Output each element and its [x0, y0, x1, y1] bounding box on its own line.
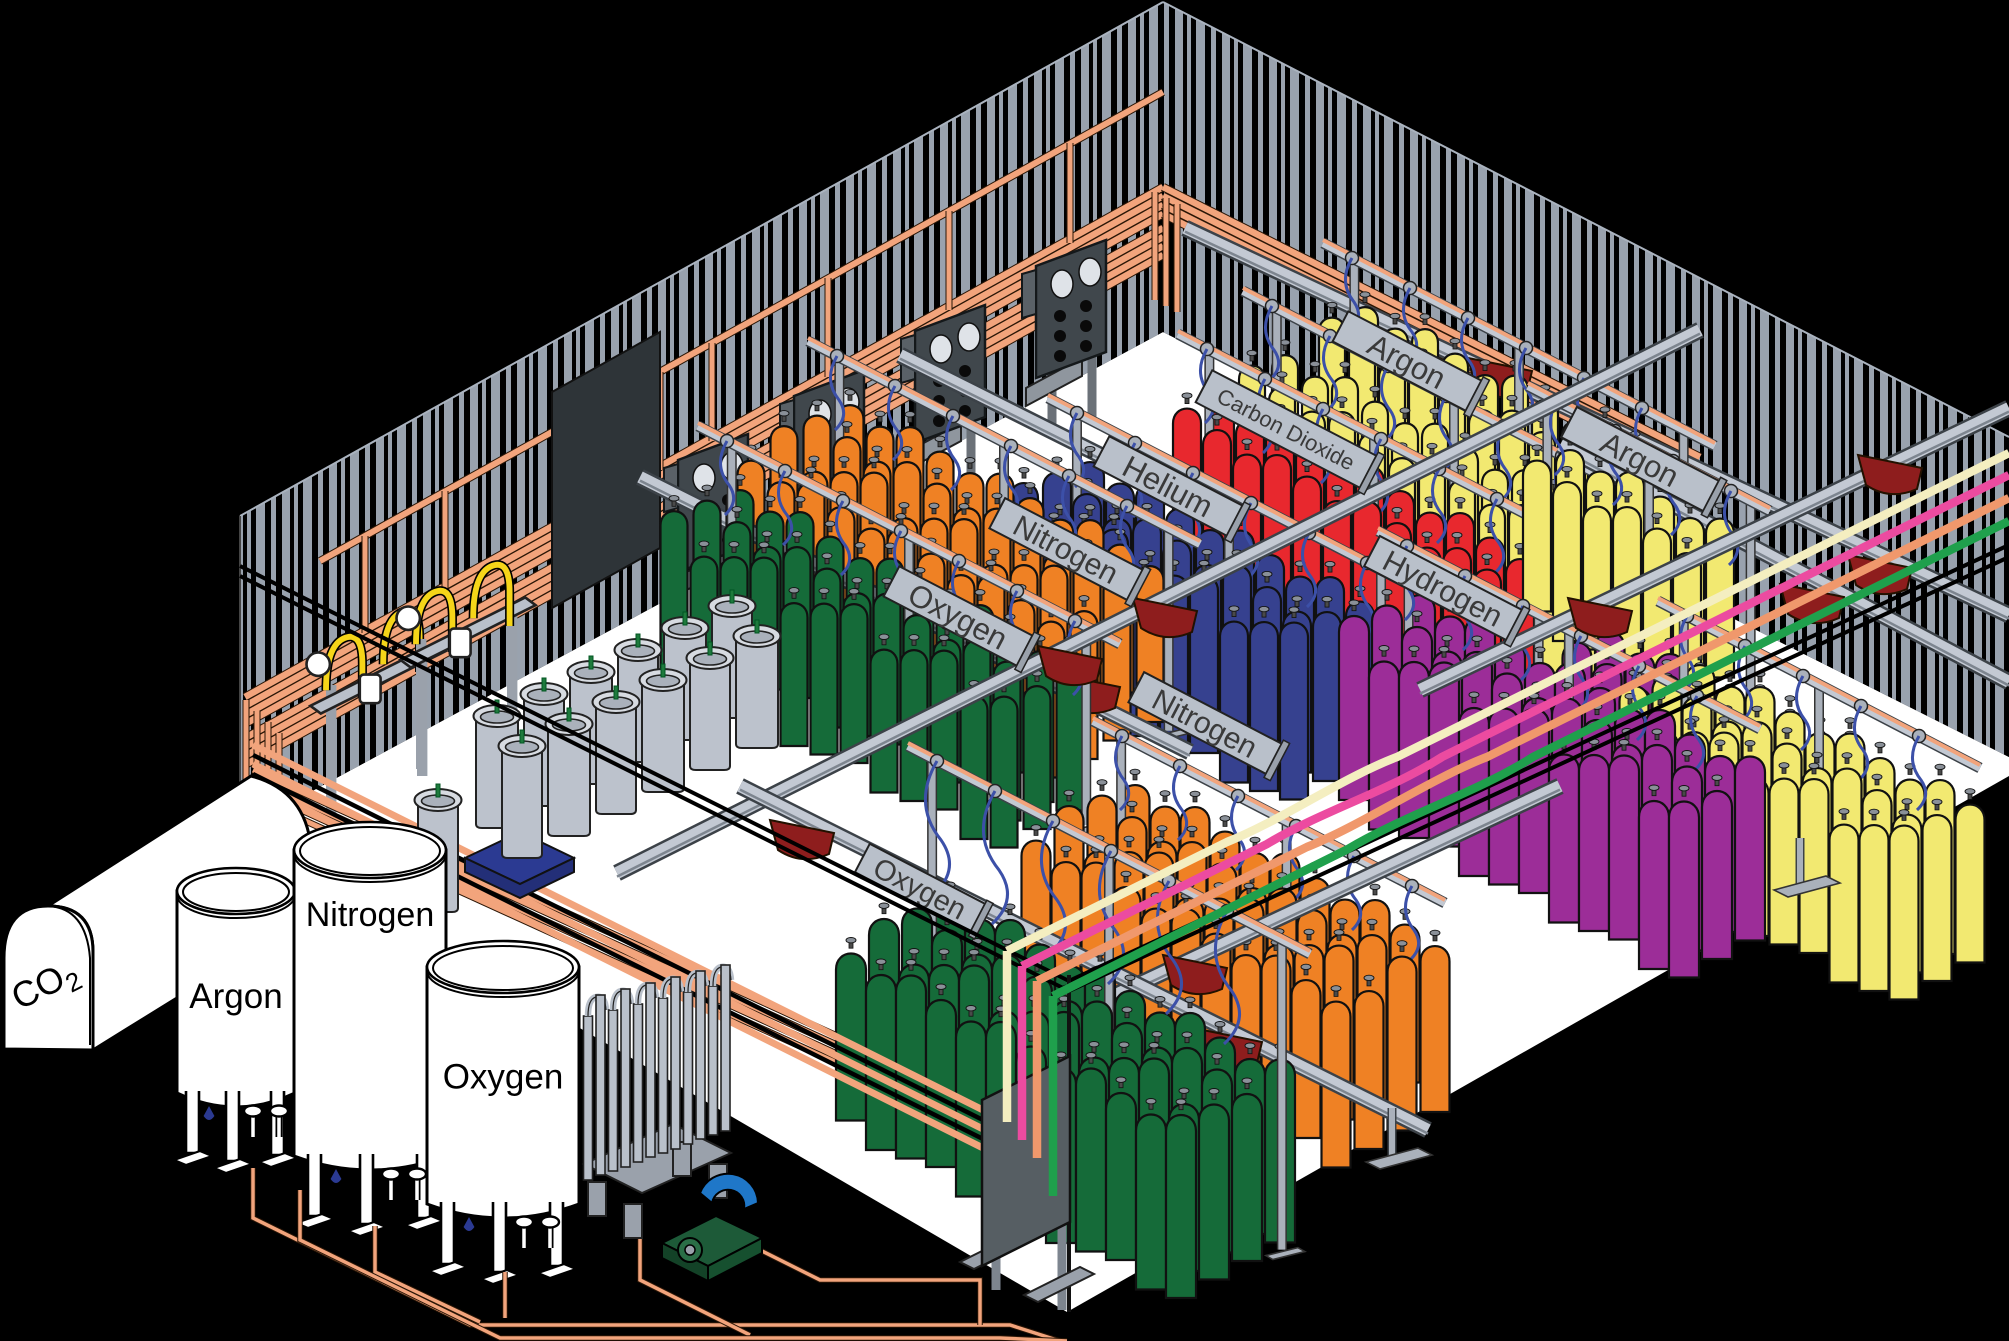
- svg-text:Argon: Argon: [189, 977, 282, 1016]
- svg-text:Nitrogen: Nitrogen: [306, 896, 435, 934]
- svg-text:Oxygen: Oxygen: [443, 1058, 564, 1097]
